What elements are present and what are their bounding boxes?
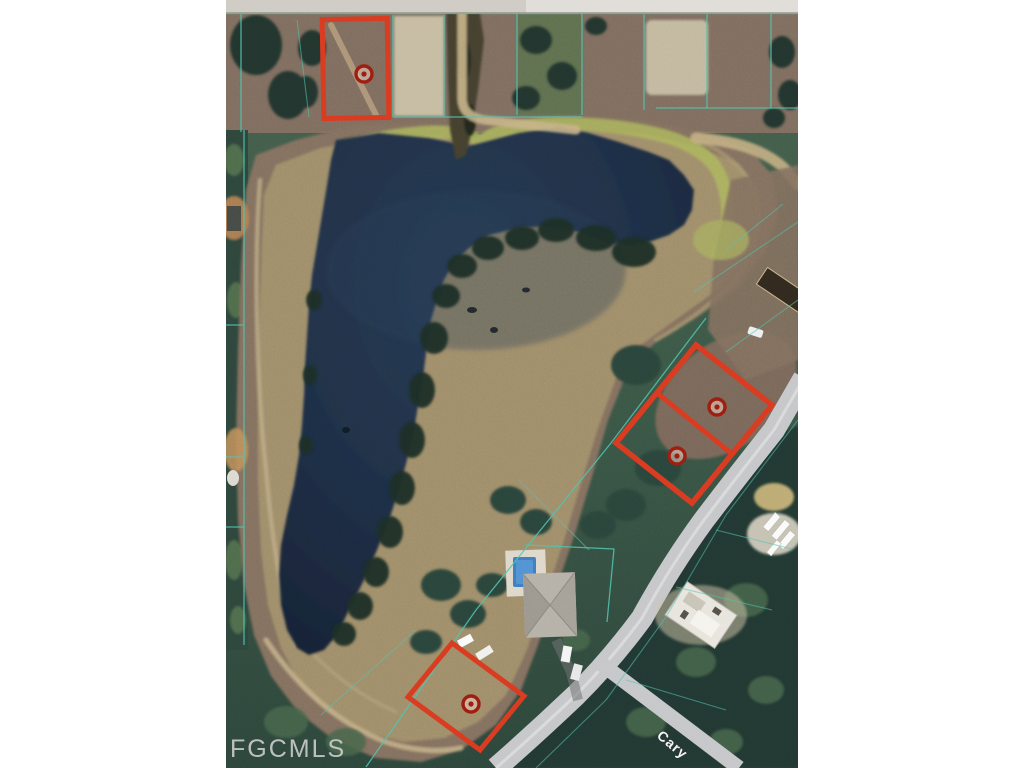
photo-grain-overlay bbox=[226, 0, 798, 768]
aerial-photo-svg: Cary FGCMLS bbox=[226, 0, 798, 768]
listing-screenshot: Cary FGCMLS bbox=[0, 0, 1024, 768]
aerial-photo: Cary FGCMLS bbox=[226, 0, 798, 768]
